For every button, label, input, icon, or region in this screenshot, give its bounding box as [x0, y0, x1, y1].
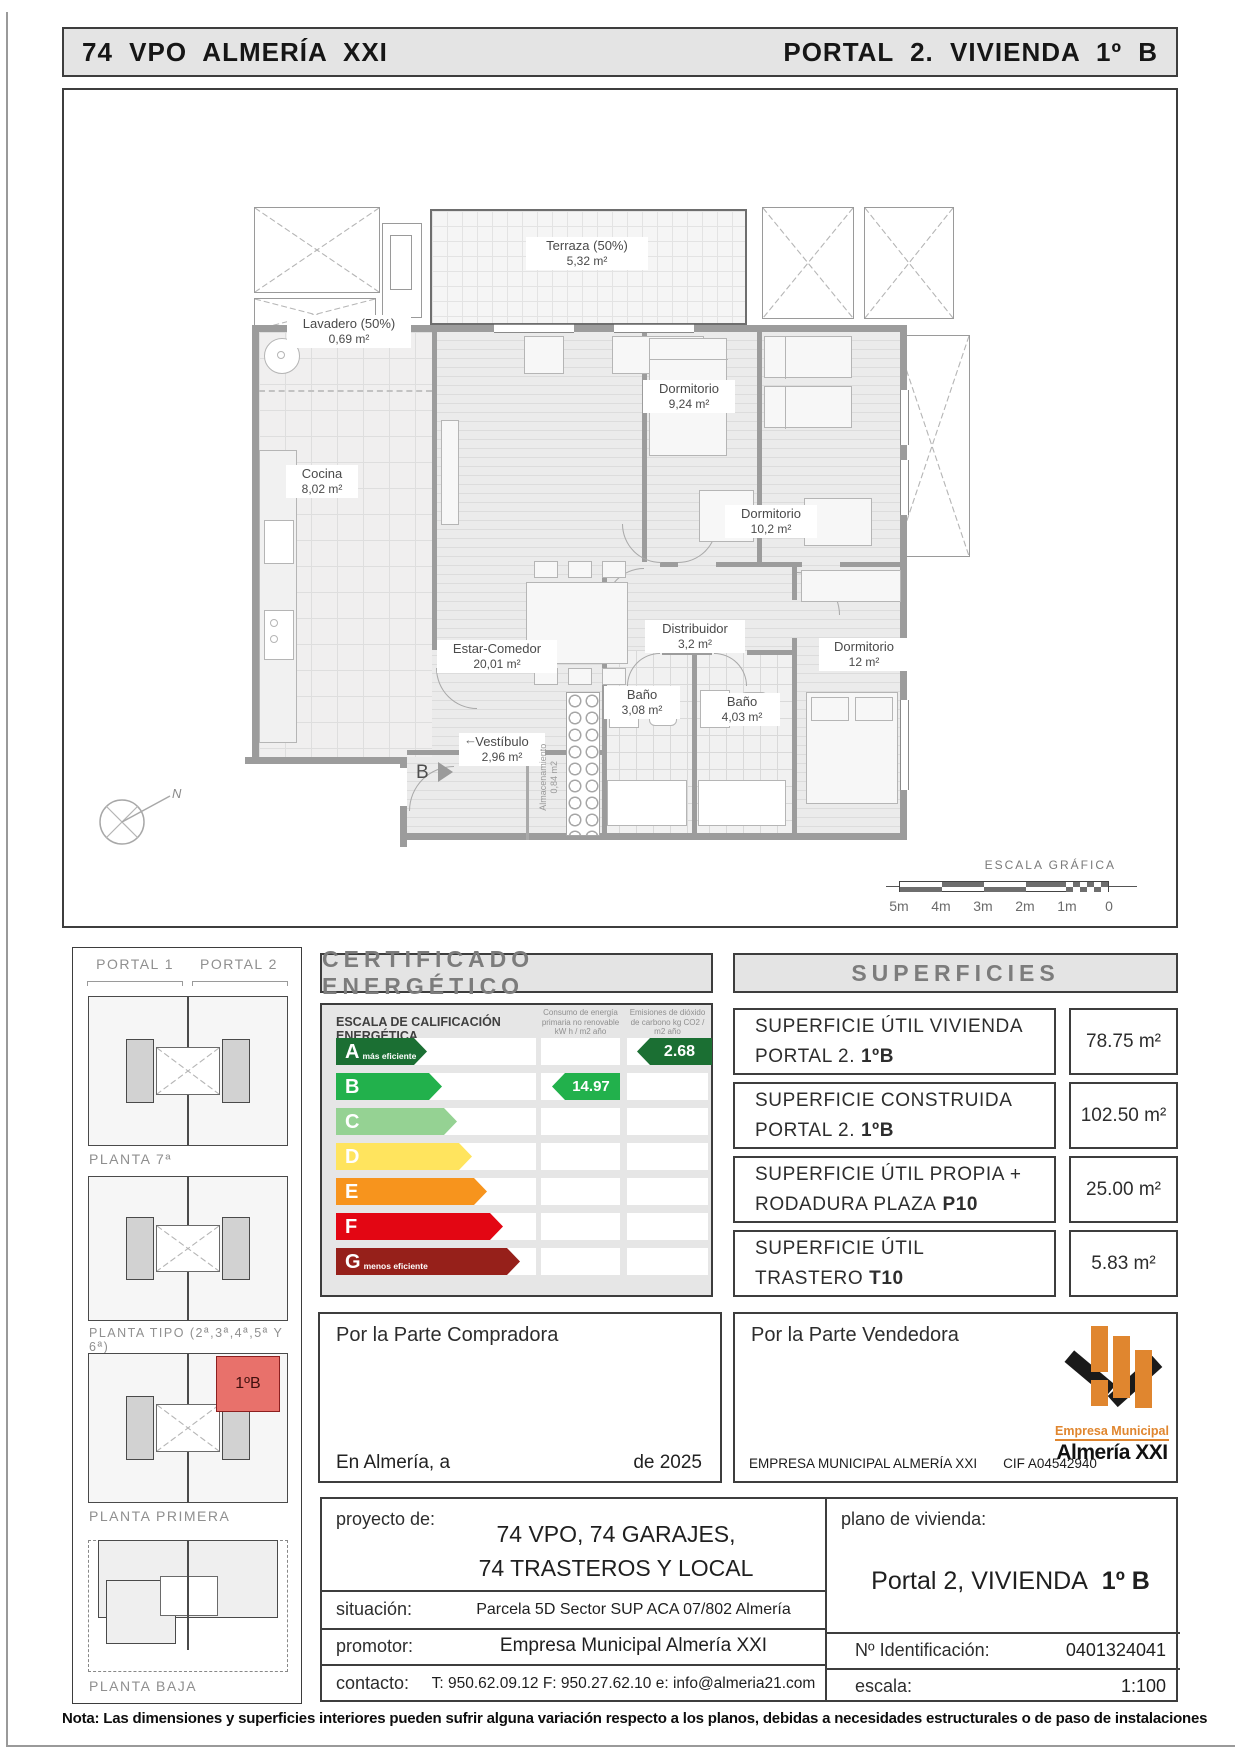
wall [432, 332, 437, 650]
escala-row: escala: 1:100 [841, 1668, 1180, 1704]
scale-tick-label: 5m [887, 898, 911, 914]
floor-label: PLANTA TIPO (2ª,3ª,4ª,5ª Y 6ª) [89, 1326, 301, 1354]
logo-block [1091, 1380, 1108, 1406]
buyer-year: de 2025 [633, 1452, 702, 1474]
row-cell [627, 1143, 708, 1170]
portal-header: PORTAL 1 PORTAL 2 [73, 956, 301, 972]
stair-core [222, 1217, 250, 1280]
scale-segment [984, 887, 1026, 892]
seller-title: Por la Parte Vendedora [751, 1324, 959, 1347]
party-wall [187, 1272, 189, 1321]
contacto-value: T: 950.62.09.12 F: 950.27.62.10 e: info@… [422, 1675, 825, 1693]
energy-row-d: D [322, 1143, 711, 1170]
x-hatch-icon [255, 208, 379, 292]
table-line [322, 1590, 825, 1592]
lavadero-divider [259, 390, 432, 392]
scale-bar: ESCALA GRÁFICA 5m 4m 3m 2m 1m 0 [894, 858, 1144, 916]
id-row: Nº Identificación: 0401324041 [841, 1632, 1180, 1668]
page-left-border [6, 12, 8, 1747]
double-bed [806, 692, 898, 804]
energy-row-f: F [322, 1213, 711, 1240]
floor-label: PLANTA BAJA [89, 1678, 197, 1694]
scale-tick-label: 4m [929, 898, 953, 914]
table-line [322, 1664, 825, 1666]
scale-segment [1026, 882, 1068, 887]
hob-ring-icon [270, 635, 278, 643]
kitchen-hob [264, 610, 294, 660]
document-title: 74 VPO ALMERÍA XXI [82, 37, 388, 68]
x-hatch-icon [157, 1048, 219, 1094]
room-label-bano-2: Baño4,03 m² [704, 693, 780, 726]
escala-value: 1:100 [1121, 1676, 1166, 1697]
wall [747, 650, 792, 655]
wall [692, 650, 697, 833]
row-cell [541, 1178, 620, 1205]
superficie-row-value: 102.50 m² [1069, 1082, 1178, 1149]
energy-col2-header: Emisiones de dióxido de carbono kg CO2 /… [627, 1008, 708, 1037]
party-wall [187, 1452, 189, 1503]
hob-ring-icon [270, 619, 278, 627]
superficie-row-value: 5.83 m² [1069, 1230, 1178, 1297]
energy-row-e: E [322, 1178, 711, 1205]
scale-segment [942, 882, 984, 887]
compass-icon: N [88, 782, 188, 852]
superficie-row-label: SUPERFICIE ÚTIL TRASTERO T10 [733, 1230, 1056, 1297]
row-cell [541, 1143, 620, 1170]
window [900, 390, 909, 445]
courtyard [156, 1404, 220, 1452]
company-logo: Empresa Municipal Almería XXI [1051, 1322, 1173, 1480]
patio-box [762, 207, 854, 319]
sideboard [441, 420, 459, 525]
scale-bar-title: ESCALA GRÁFICA [985, 858, 1116, 872]
chair [602, 668, 626, 685]
stair-core [126, 1039, 154, 1103]
energy-title-box: CERTIFICADO ENERGÉTICO [320, 953, 713, 993]
room-label-dormitorio-2: Dormitorio10,2 m² [725, 505, 817, 538]
room-label-cocina: Cocina8,02 m² [286, 465, 358, 498]
consumption-value-arrow: 14.97 [552, 1073, 620, 1100]
logo-block [1091, 1326, 1108, 1372]
floor-label: PLANTA PRIMERA [89, 1508, 230, 1524]
proyecto-line2: 74 TRASTEROS Y LOCAL [407, 1555, 825, 1582]
pillow [855, 697, 893, 721]
buyer-title: Por la Parte Compradora [336, 1324, 558, 1347]
storage-shelves [566, 692, 600, 836]
room-label-dormitorio-3: Dormitorio12 m² [819, 638, 909, 671]
superficie-row-label: SUPERFICIE ÚTIL VIVIENDA PORTAL 2. 1ºB [733, 1008, 1056, 1075]
shaft-box [382, 223, 422, 318]
logo-line2: Almería XXI [1051, 1441, 1173, 1465]
stair-core [222, 1039, 250, 1103]
stair-core [126, 1217, 154, 1280]
row-cell [541, 1038, 620, 1065]
situacion-label: situación: [336, 1599, 412, 1620]
courtyard [156, 1225, 220, 1272]
mini-plan-planta-baja [88, 1540, 288, 1672]
wardrobe [801, 570, 901, 602]
x-hatch-icon [865, 208, 953, 318]
unit-title: PORTAL 2. VIVIENDA 1º B [783, 37, 1158, 68]
buyer-place: En Almería, a [336, 1452, 450, 1474]
row-cell [627, 1108, 708, 1135]
energy-row-c: C [322, 1108, 711, 1135]
chair [534, 561, 558, 578]
wall [526, 755, 529, 840]
row-cell [627, 1178, 708, 1205]
row-cell [541, 1213, 620, 1240]
row-cell [627, 1248, 708, 1275]
seller-signature-box: Por la Parte Vendedora EMPRESA MUNICIPAL… [733, 1312, 1178, 1483]
energy-row-b: B 14.97 [322, 1073, 711, 1100]
shaft-inner [390, 235, 412, 290]
courtyard [156, 1047, 220, 1095]
logo-block [1113, 1336, 1130, 1398]
plano-value-line: Portal 2, VIVIENDA 1º B [841, 1567, 1180, 1596]
scale-segment [1066, 887, 1108, 892]
portal-bracket [87, 981, 183, 986]
rating-arrow-f: F [336, 1213, 503, 1240]
energy-panel: ESCALA DE CALIFICACIÓN ENERGÉTICA Consum… [320, 1003, 713, 1297]
energy-col1-header: Consumo de energía primaria no renovable… [541, 1008, 620, 1037]
entrance-door-gap [400, 768, 407, 806]
logo-mark-icon [1065, 1322, 1159, 1418]
promotor-label: promotor: [336, 1636, 413, 1657]
rating-arrow-g: Gmenos eficiente [336, 1248, 520, 1275]
wall [716, 562, 802, 567]
chair [602, 561, 626, 578]
room-label-dormitorio-1: Dormitorio9,24 m² [643, 380, 735, 413]
room-label-almacenamiento: Almacenamiento0,84 m2 [537, 721, 562, 833]
row-cell [541, 1248, 620, 1275]
seller-company-line: EMPRESA MUNICIPAL ALMERÍA XXI CIF A04542… [749, 1456, 1097, 1471]
party-wall [187, 1095, 189, 1146]
contacto-label: contacto: [336, 1673, 409, 1694]
row-cell [627, 1213, 708, 1240]
bed [764, 336, 852, 378]
highlighted-unit-1b: 1ºB [216, 1356, 280, 1412]
logo-line1: Empresa Municipal [1055, 1424, 1169, 1441]
entry-direction-arrow-icon: ← [464, 732, 477, 747]
mini-plan-planta-primera: 1ºB [88, 1353, 288, 1503]
scale-tick-label: 1m [1055, 898, 1079, 914]
mini-plan-planta7 [88, 996, 288, 1146]
mini-plan-planta-tipo [88, 1176, 288, 1321]
floor-plan-frame: Terraza (50%)5,32 m² Lavadero (50%)0,69 … [62, 88, 1178, 928]
superficie-row-value: 25.00 m² [1069, 1156, 1178, 1223]
id-value: 0401324041 [1066, 1640, 1166, 1661]
scale-segment [900, 887, 942, 892]
emissions-value-arrow: 2.68 [637, 1038, 712, 1065]
floor-label: PLANTA 7ª [89, 1151, 172, 1167]
wall [660, 562, 678, 567]
party-wall [187, 1353, 189, 1404]
pillow-line [650, 359, 728, 360]
situacion-value: Parcela 5D Sector SUP ACA 07/802 Almería [442, 1601, 825, 1619]
armchair [524, 336, 564, 374]
header-bar: 74 VPO ALMERÍA XXI PORTAL 2. VIVIENDA 1º… [62, 27, 1178, 77]
room-label-bano-1: Baño3,08 m² [604, 686, 680, 719]
plano-label: plano de vivienda: [841, 1509, 986, 1530]
bathtub [698, 780, 786, 826]
wall [840, 562, 907, 567]
page-bottom-border [6, 1745, 1235, 1747]
document-page: 74 VPO ALMERÍA XXI PORTAL 2. VIVIENDA 1º… [0, 0, 1241, 1754]
balcony-box [254, 207, 380, 293]
rating-arrow-e: E [336, 1178, 487, 1205]
apartment-notch [245, 757, 407, 847]
superficies-title: SUPERFICIES [851, 960, 1059, 987]
washing-machine-drum [277, 351, 285, 359]
x-hatch-icon [157, 1405, 219, 1451]
window [494, 324, 574, 333]
energy-row-a: Amás eficiente 2.68 [322, 1038, 711, 1065]
table-divider [825, 1499, 827, 1700]
room-label-distribuidor: Distribuidor3,2 m² [645, 620, 745, 653]
rating-arrow-a: Amás eficiente [336, 1038, 427, 1065]
scale-tick-label: 0 [1097, 898, 1121, 914]
building-key-panel: PORTAL 1 PORTAL 2 PLANTA 7ª PLANTA TIPO … [72, 947, 302, 1704]
superficie-row-value: 78.75 m² [1069, 1008, 1178, 1075]
logo-text: Empresa Municipal Almería XXI [1051, 1422, 1173, 1465]
buyer-signature-box: Por la Parte Compradora En Almería, a de… [318, 1312, 722, 1483]
courtyard [160, 1576, 218, 1616]
pillow [811, 697, 849, 721]
proyecto-line1: 74 VPO, 74 GARAJES, [407, 1521, 825, 1548]
rating-arrow-b: B [336, 1073, 442, 1100]
rating-arrow-d: D [336, 1143, 472, 1170]
kitchen-sink [264, 520, 294, 564]
entrance-letter: B [416, 762, 429, 784]
patio-box [864, 207, 954, 319]
pillow-line [785, 337, 786, 379]
scale-tick-label: 3m [971, 898, 995, 914]
rating-arrow-c: C [336, 1108, 457, 1135]
project-info-table: proyecto de: 74 VPO, 74 GARAJES, 74 TRAS… [320, 1497, 1178, 1702]
room-label-estar: Estar-Comedor20,01 m² [437, 640, 557, 673]
portal-2-label: PORTAL 2 [200, 956, 278, 972]
stair-core [126, 1396, 154, 1460]
bed [764, 386, 852, 428]
table-line [322, 1628, 825, 1630]
pillow-line [785, 387, 786, 429]
portal-bracket [192, 981, 288, 986]
compass-n-label: N [172, 786, 182, 801]
id-label: Nº Identificación: [855, 1640, 990, 1661]
energy-title: CERTIFICADO ENERGÉTICO [322, 946, 711, 1000]
unit-label: 1ºB [235, 1375, 260, 1393]
scale-bar-body [899, 881, 1109, 892]
room-label-terraza: Terraza (50%)5,32 m² [526, 237, 648, 270]
escala-label: escala: [855, 1676, 912, 1697]
window [900, 460, 909, 515]
footer-note: Nota: Las dimensiones y superficies inte… [62, 1710, 1178, 1727]
party-wall [187, 1540, 189, 1650]
promotor-value: Empresa Municipal Almería XXI [442, 1635, 825, 1657]
chair [568, 561, 592, 578]
entrance-arrow-icon [438, 762, 453, 782]
logo-block [1135, 1350, 1152, 1408]
superficies-title-box: SUPERFICIES [733, 953, 1178, 993]
window [614, 324, 694, 333]
row-cell [541, 1108, 620, 1135]
energy-row-g: Gmenos eficiente [322, 1248, 711, 1275]
x-hatch-icon [763, 208, 853, 318]
wall [792, 638, 797, 833]
chair [568, 668, 592, 685]
portal-1-label: PORTAL 1 [96, 956, 174, 972]
scale-tick-label: 2m [1013, 898, 1037, 914]
party-wall [187, 996, 189, 1047]
bathtub [607, 780, 687, 826]
x-hatch-icon [157, 1226, 219, 1271]
room-label-lavadero: Lavadero (50%)0,69 m² [287, 315, 411, 348]
row-cell [627, 1073, 708, 1100]
window [900, 700, 909, 790]
superficie-row-label: SUPERFICIE ÚTIL PROPIA + RODADURA PLAZA … [733, 1156, 1056, 1223]
superficie-row-label: SUPERFICIE CONSTRUIDA PORTAL 2. 1ºB [733, 1082, 1056, 1149]
party-wall [187, 1176, 189, 1225]
